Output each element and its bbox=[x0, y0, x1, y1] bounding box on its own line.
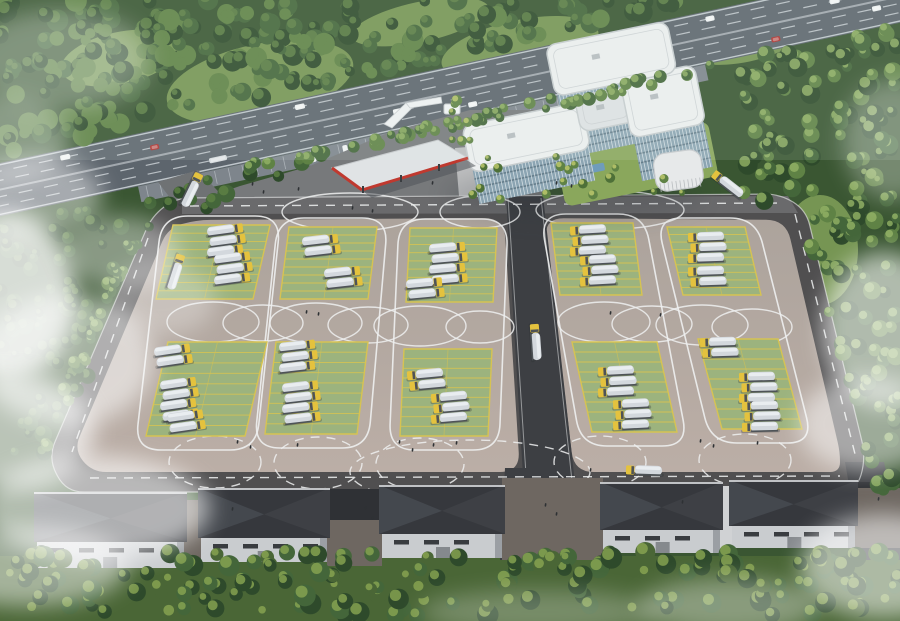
tanker-truck bbox=[689, 276, 728, 288]
tree-highlight bbox=[756, 169, 762, 175]
tree-highlight bbox=[871, 476, 882, 487]
warehouse-window bbox=[774, 532, 789, 537]
tree-highlight bbox=[847, 221, 855, 229]
tanker-truck bbox=[687, 252, 726, 264]
truck-windshield bbox=[621, 411, 624, 419]
tree-highlight bbox=[410, 608, 419, 617]
truck-wheels bbox=[700, 251, 727, 252]
truck-windshield bbox=[588, 267, 591, 275]
truck-tank-highlight bbox=[749, 372, 774, 376]
tree-highlight bbox=[579, 179, 584, 184]
warehouse-door bbox=[656, 542, 670, 553]
truck-wheels bbox=[748, 381, 775, 382]
tree-highlight bbox=[413, 581, 423, 591]
tree-highlight bbox=[299, 547, 309, 557]
tree-highlight bbox=[338, 594, 347, 603]
tree-highlight bbox=[199, 593, 206, 600]
tree-highlight bbox=[542, 190, 547, 195]
tree-highlight bbox=[129, 584, 139, 594]
tree-highlight bbox=[311, 563, 322, 574]
tree-highlight bbox=[279, 575, 287, 583]
truck-windshield bbox=[585, 278, 588, 286]
warehouse-window bbox=[243, 544, 258, 549]
truck-tank-highlight bbox=[749, 393, 774, 397]
tree-highlight bbox=[265, 560, 272, 567]
tanker-truck bbox=[738, 371, 777, 383]
tree-highlight bbox=[501, 578, 510, 587]
tree-highlight bbox=[476, 184, 481, 189]
truck-windshield bbox=[693, 268, 696, 276]
tanker-truck bbox=[701, 347, 740, 359]
tree-highlight bbox=[390, 590, 401, 601]
warehouse-window bbox=[454, 540, 469, 545]
tanker-truck bbox=[625, 465, 664, 477]
truck-windshield bbox=[750, 413, 753, 421]
tree-highlight bbox=[245, 161, 252, 168]
tree-highlight bbox=[164, 574, 171, 581]
truck-windshield bbox=[708, 349, 711, 357]
truck-tank-highlight bbox=[752, 401, 777, 405]
tree-highlight bbox=[481, 164, 485, 168]
tree-highlight bbox=[163, 605, 174, 616]
tree-highlight bbox=[248, 555, 256, 563]
tanker-truck bbox=[741, 400, 780, 412]
tree-highlight bbox=[204, 577, 212, 585]
tree-highlight bbox=[817, 250, 823, 256]
warehouse-gap-yard bbox=[502, 478, 603, 560]
tree-highlight bbox=[805, 240, 813, 248]
warehouse-wall-shade bbox=[713, 528, 720, 553]
truck-windshield bbox=[693, 254, 696, 262]
truck-wheels bbox=[700, 285, 727, 286]
warehouse-door bbox=[436, 547, 450, 558]
tree-highlight bbox=[565, 166, 570, 171]
tree-highlight bbox=[867, 212, 877, 222]
warehouse bbox=[600, 482, 723, 553]
tree-highlight bbox=[176, 553, 187, 564]
tree-highlight bbox=[822, 261, 830, 269]
tree-highlight bbox=[695, 550, 705, 560]
tree-highlight bbox=[756, 192, 766, 202]
tree-highlight bbox=[258, 606, 266, 614]
tanker-truck bbox=[743, 411, 782, 423]
tree-highlight bbox=[296, 586, 308, 598]
tree-highlight bbox=[606, 173, 612, 179]
tree-highlight bbox=[219, 186, 229, 196]
tree-highlight bbox=[469, 191, 474, 196]
tanker-truck bbox=[687, 265, 726, 277]
tree-highlight bbox=[885, 230, 893, 238]
warehouse-wall-shade bbox=[495, 532, 502, 558]
tree-highlight bbox=[556, 162, 561, 167]
tree-highlight bbox=[612, 164, 616, 168]
truck-windshield bbox=[744, 394, 747, 402]
canopy-column bbox=[400, 175, 402, 182]
tanker-truck bbox=[699, 337, 738, 349]
tree-highlight bbox=[850, 181, 859, 190]
warehouse-window bbox=[645, 536, 660, 541]
truck-windshield bbox=[618, 422, 621, 430]
tree-highlight bbox=[178, 602, 186, 610]
truck-windshield bbox=[603, 368, 606, 376]
truck-windshield bbox=[747, 423, 750, 431]
tree-highlight bbox=[853, 212, 861, 220]
tree-highlight bbox=[560, 178, 564, 182]
roof-parapet bbox=[198, 488, 330, 490]
warehouse-window bbox=[675, 536, 690, 541]
tree-highlight bbox=[178, 586, 187, 595]
tree-highlight bbox=[203, 176, 209, 182]
truck-windshield bbox=[696, 278, 699, 286]
warehouse-door bbox=[787, 537, 801, 548]
tree-highlight bbox=[494, 164, 499, 169]
tree-highlight bbox=[640, 566, 648, 574]
truck-windshield bbox=[575, 227, 578, 235]
truck-wheels bbox=[751, 410, 778, 411]
truck-windshield bbox=[693, 233, 696, 241]
canopy-column bbox=[438, 164, 440, 171]
tree-highlight bbox=[807, 184, 814, 191]
tree-highlight bbox=[822, 211, 829, 218]
truck-windshield bbox=[606, 378, 609, 386]
truck-windshield bbox=[618, 401, 621, 409]
truck-windshield bbox=[575, 248, 578, 256]
atmospheric-haze bbox=[0, 0, 900, 160]
tree-highlight bbox=[679, 190, 682, 193]
fog-patch bbox=[60, 216, 180, 288]
truck-windshield bbox=[744, 373, 747, 381]
truck-windshield bbox=[603, 389, 606, 397]
tree-highlight bbox=[637, 543, 648, 554]
tree-highlight bbox=[280, 545, 289, 554]
tree-highlight bbox=[574, 566, 585, 577]
tree-highlight bbox=[497, 195, 502, 200]
tree-highlight bbox=[591, 559, 602, 570]
tree-highlight bbox=[145, 197, 152, 204]
tree-highlight bbox=[164, 197, 172, 205]
tree-highlight bbox=[562, 553, 569, 560]
truck-wheels bbox=[712, 356, 739, 357]
tree-highlight bbox=[545, 552, 555, 562]
tanker-truck bbox=[687, 231, 726, 243]
tree-highlight bbox=[99, 605, 107, 613]
tree-highlight bbox=[867, 236, 874, 243]
tree-highlight bbox=[810, 215, 816, 221]
roof-parapet bbox=[379, 485, 505, 487]
tree-highlight bbox=[784, 180, 794, 190]
tree-highlight bbox=[660, 174, 665, 179]
tree-highlight bbox=[208, 600, 218, 610]
tree-highlight bbox=[365, 547, 373, 555]
truck-wheels bbox=[754, 420, 781, 421]
aerial-render bbox=[0, 0, 900, 621]
tree-highlight bbox=[230, 588, 237, 595]
truck-wheels bbox=[697, 241, 724, 242]
tree-highlight bbox=[764, 162, 771, 169]
tree-highlight bbox=[423, 552, 430, 559]
truck-windshield bbox=[696, 244, 699, 252]
tree-highlight bbox=[651, 189, 655, 193]
truck-windshield bbox=[631, 466, 634, 474]
roof-parapet bbox=[600, 482, 723, 484]
tree-highlight bbox=[152, 580, 161, 589]
tree-highlight bbox=[833, 218, 840, 225]
truck-wheels bbox=[635, 474, 662, 475]
truck-tank-highlight bbox=[754, 412, 779, 416]
tanker-truck bbox=[741, 421, 780, 433]
truck-windshield bbox=[747, 384, 750, 392]
truck-tank-highlight bbox=[751, 383, 776, 387]
tree-highlight bbox=[207, 194, 216, 203]
tree-highlight bbox=[790, 163, 799, 172]
tree-highlight bbox=[141, 567, 149, 575]
roof-parapet bbox=[729, 480, 858, 482]
tree-highlight bbox=[402, 570, 409, 577]
truck-tank-highlight bbox=[752, 422, 777, 426]
warehouse-window bbox=[615, 536, 630, 541]
warehouse-window bbox=[394, 540, 409, 545]
tree-highlight bbox=[336, 555, 346, 565]
tree-highlight bbox=[220, 556, 232, 568]
truck-windshield bbox=[578, 237, 581, 245]
truck-wheels bbox=[697, 275, 724, 276]
tree-highlight bbox=[892, 213, 898, 219]
truck-windshield bbox=[531, 329, 539, 332]
tree-highlight bbox=[680, 564, 690, 574]
warehouse bbox=[379, 485, 505, 558]
tanker-truck bbox=[689, 242, 728, 254]
truck-wheels bbox=[751, 431, 778, 432]
tree-highlight bbox=[430, 570, 439, 579]
tree-highlight bbox=[589, 190, 594, 195]
canopy-column bbox=[362, 186, 364, 193]
truck-windshield bbox=[585, 257, 588, 265]
truck-wheels bbox=[697, 262, 724, 263]
warehouse-window bbox=[424, 540, 439, 545]
tree-highlight bbox=[310, 546, 320, 556]
truck-wheels bbox=[751, 391, 778, 392]
truck-windshield bbox=[747, 402, 750, 410]
truck-windshield bbox=[705, 339, 708, 347]
tree-highlight bbox=[211, 548, 218, 555]
tree-highlight bbox=[508, 556, 516, 564]
tanker-truck bbox=[740, 382, 779, 394]
tree-highlight bbox=[887, 220, 893, 226]
warehouse-window bbox=[744, 532, 759, 537]
tree-highlight bbox=[522, 553, 533, 564]
tree-highlight bbox=[571, 161, 575, 165]
tree-highlight bbox=[236, 575, 246, 585]
tree-highlight bbox=[451, 549, 461, 559]
tree-highlight bbox=[415, 563, 423, 571]
warehouse-window bbox=[213, 544, 228, 549]
tree-highlight bbox=[174, 187, 181, 194]
tree-highlight bbox=[366, 583, 373, 590]
tree-highlight bbox=[847, 200, 854, 207]
tree-highlight bbox=[534, 558, 544, 568]
tree-highlight bbox=[657, 555, 668, 566]
truck-wheels bbox=[709, 346, 736, 347]
tree-highlight bbox=[274, 171, 280, 177]
tree-highlight bbox=[721, 565, 731, 575]
tree-highlight bbox=[602, 548, 614, 560]
